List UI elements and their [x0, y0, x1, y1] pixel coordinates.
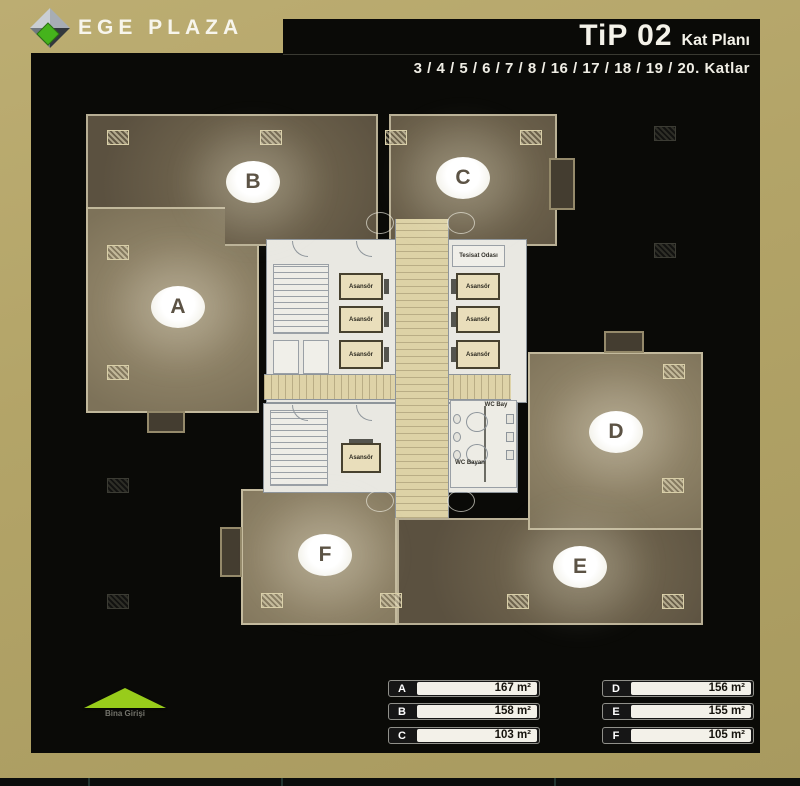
elevator-box: Asansör: [456, 273, 500, 300]
strip-divider: [281, 778, 283, 786]
column-marker: [107, 245, 129, 260]
facade-bump-d: [604, 331, 644, 353]
staircase-lower: [270, 410, 328, 486]
header-divider: [283, 54, 760, 55]
legend-letter: B: [389, 706, 415, 718]
elevator-label: Asansör: [349, 455, 373, 461]
legend-row-e: E 155 m²: [602, 703, 754, 720]
elevator-label: Asansör: [349, 352, 373, 358]
elevator-door: [451, 279, 456, 294]
elevator-box: Asansör: [339, 273, 383, 300]
legend-area: 103 m²: [417, 729, 537, 742]
section-label-e: E: [553, 546, 607, 588]
column-marker: [261, 593, 283, 608]
column-marker: [654, 243, 676, 258]
wc-fixture: [506, 432, 514, 442]
elevator-label: Asansör: [349, 317, 373, 323]
corridor-vertical: [395, 219, 449, 518]
column-marker: [662, 594, 684, 609]
column-marker: [107, 130, 129, 145]
elevator-box: Asansör: [341, 443, 381, 473]
strip-divider: [88, 778, 90, 786]
legend-letter: F: [603, 730, 629, 742]
facade-bump-c: [549, 158, 575, 210]
wc-fixture: [453, 432, 461, 442]
elevator-label: Asansör: [466, 317, 490, 323]
section-e: [397, 518, 703, 625]
elevator-door: [451, 347, 456, 362]
page: { "header": { "logo_text": "EGE PLAZA", …: [0, 0, 800, 786]
utility-room-label: Tesisat Odası: [459, 253, 498, 260]
section-label-b: B: [226, 161, 280, 203]
wc-fixture: [506, 414, 514, 424]
legend-letter: E: [603, 706, 629, 718]
legend-letter: D: [603, 683, 629, 695]
legend-area: 105 m²: [631, 729, 751, 742]
column-marker: [107, 478, 129, 493]
entrance-arrow-icon: [84, 688, 166, 708]
column-marker: [663, 364, 685, 379]
page-title-suffix: Kat Planı: [682, 32, 750, 50]
corridor-horizontal: [264, 374, 511, 400]
wc-women-label: WC Bayan: [452, 460, 488, 467]
section-label-f: F: [298, 534, 352, 576]
column-marker: [654, 126, 676, 141]
elevator-box: Asansör: [339, 340, 383, 369]
legend-row-a: A 167 m²: [388, 680, 540, 697]
core-room: [303, 340, 329, 374]
legend-row-f: F 105 m²: [602, 727, 754, 744]
section-label-d: D: [589, 411, 643, 453]
door-swing: [366, 212, 394, 234]
column-marker: [260, 130, 282, 145]
entrance-label: Bina Girişi: [80, 709, 170, 718]
column-marker: [520, 130, 542, 145]
legend-area: 158 m²: [417, 705, 537, 718]
facade-bump-a: [147, 411, 185, 433]
elevator-box: Asansör: [456, 340, 500, 369]
legend-area: 156 m²: [631, 682, 751, 695]
legend-letter: C: [389, 730, 415, 742]
utility-room: Tesisat Odası: [452, 245, 505, 267]
staircase-upper: [273, 264, 329, 334]
door-swing: [447, 212, 475, 234]
elevator-label: Asansör: [466, 352, 490, 358]
bottom-strip: [0, 778, 800, 786]
wc-men-label: WC Bay: [478, 402, 514, 409]
logo-text: EGE PLAZA: [78, 16, 243, 40]
core-room: [273, 340, 299, 374]
section-label-c: C: [436, 157, 490, 199]
strip-divider: [554, 778, 556, 786]
legend-letter: A: [389, 683, 415, 695]
wc-door-swing: [466, 412, 488, 432]
door-swing: [447, 490, 475, 512]
column-marker: [662, 478, 684, 493]
wc-fixture: [506, 450, 514, 460]
elevator-label: Asansör: [466, 284, 490, 290]
legend-row-c: C 103 m²: [388, 727, 540, 744]
legend-area: 155 m²: [631, 705, 751, 718]
page-title: TiP 02: [579, 19, 672, 53]
floors-line: 3 / 4 / 5 / 6 / 7 / 8 / 16 / 17 / 18 / 1…: [300, 60, 750, 77]
legend-area: 167 m²: [417, 682, 537, 695]
elevator-door: [384, 312, 389, 327]
column-marker: [107, 365, 129, 380]
facade-bump-f: [220, 527, 242, 577]
door-swing: [366, 490, 394, 512]
legend-row-d: D 156 m²: [602, 680, 754, 697]
elevator-door: [451, 312, 456, 327]
section-label-a: A: [151, 286, 205, 328]
column-marker: [380, 593, 402, 608]
elevator-door: [384, 347, 389, 362]
logo-diamond-icon: [28, 6, 72, 50]
column-marker: [107, 594, 129, 609]
column-marker: [507, 594, 529, 609]
legend-row-b: B 158 m²: [388, 703, 540, 720]
title-block: TiP 02 Kat Planı: [283, 19, 760, 54]
elevator-door: [384, 279, 389, 294]
elevator-box: Asansör: [456, 306, 500, 333]
wc-fixture: [453, 414, 461, 424]
elevator-box: Asansör: [339, 306, 383, 333]
column-marker: [385, 130, 407, 145]
wc-fixture: [453, 450, 461, 460]
elevator-label: Asansör: [349, 284, 373, 290]
